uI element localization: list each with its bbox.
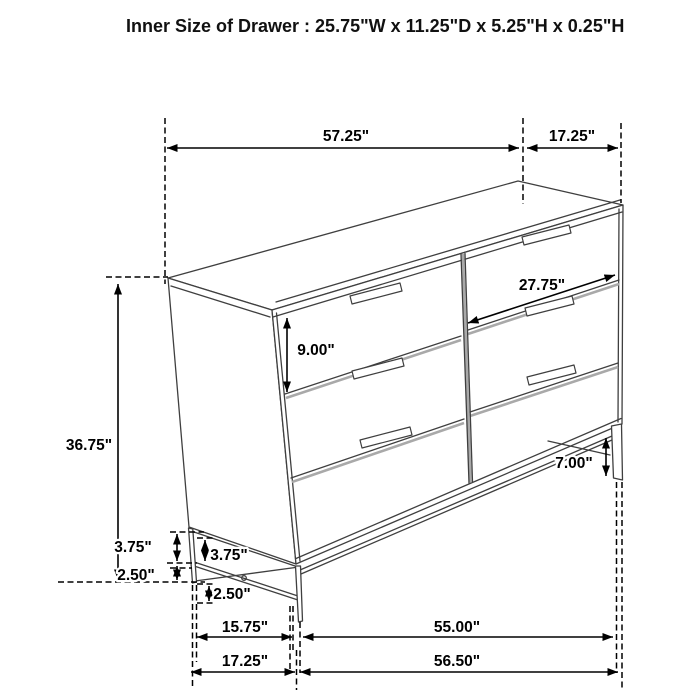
dim-label-top-width: 57.25" xyxy=(323,128,369,145)
dim-label-drawer-width: 27.75" xyxy=(519,277,565,294)
dim-label-base-lower-front: 2.50" xyxy=(213,586,251,603)
dim-label-base-width-outer: 56.50" xyxy=(434,653,480,670)
front-left-leg xyxy=(296,566,303,622)
dim-label-leg-height: 7.00" xyxy=(555,455,593,472)
dim-label-top-depth: 17.25" xyxy=(549,128,595,145)
dresser-dimension-diagram: 57.25" 17.25" 27.75" 9.00" 36.75" 3.75" … xyxy=(0,0,700,700)
dim-label-base-upper-front: 3.75" xyxy=(210,547,248,564)
dim-label-drawer-height: 9.00" xyxy=(297,342,335,359)
dim-label-base-depth-inner: 15.75" xyxy=(222,619,268,636)
dim-label-base-lower-side: 2.50" xyxy=(117,567,155,584)
right-leg xyxy=(612,424,623,480)
dim-label-base-upper-side: 3.75" xyxy=(114,539,152,556)
dim-label-overall-height: 36.75" xyxy=(66,437,112,454)
dim-label-base-depth-outer: 17.25" xyxy=(222,653,268,670)
dimension-diagram-page: Inner Size of Drawer : 25.75"W x 11.25"D… xyxy=(0,0,700,700)
back-left-leg xyxy=(189,528,197,583)
dim-label-base-width-inner: 55.00" xyxy=(434,619,480,636)
